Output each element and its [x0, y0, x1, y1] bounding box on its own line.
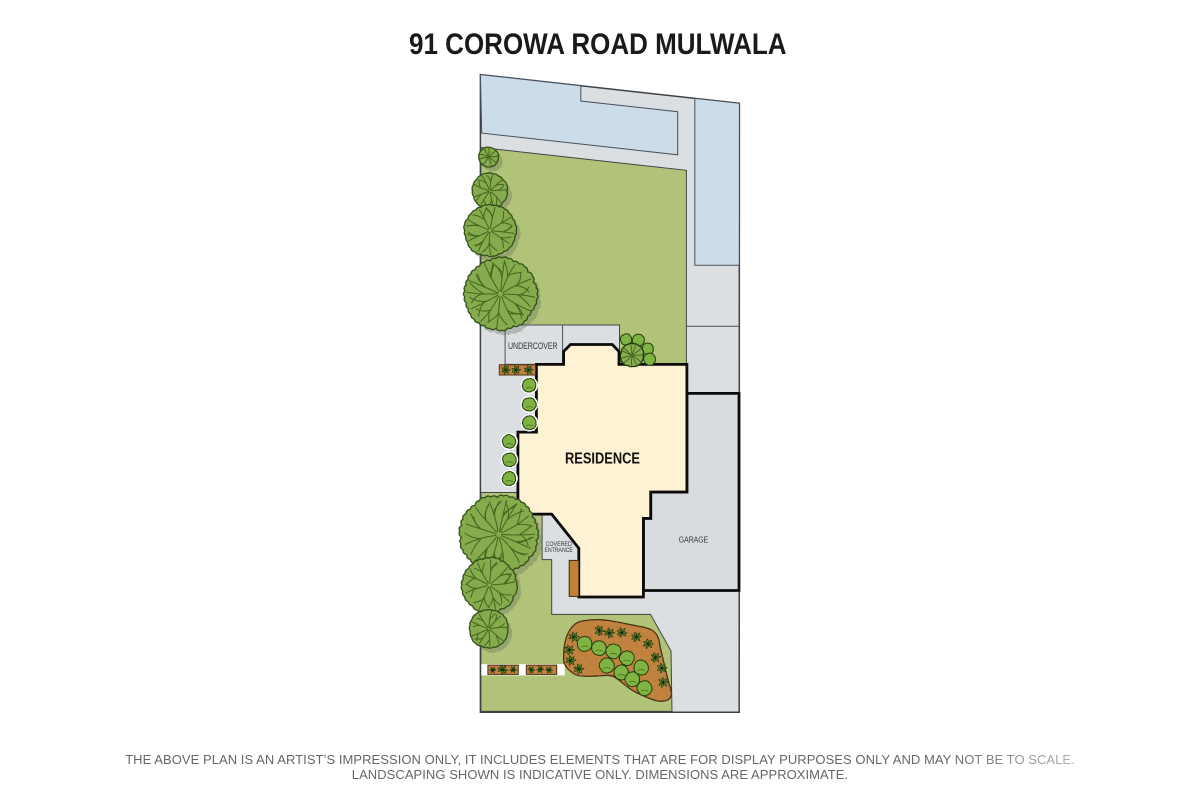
svg-text:RESIDENCE: RESIDENCE	[565, 451, 640, 468]
svg-text:ENTRANCE: ENTRANCE	[545, 547, 573, 554]
svg-text:GARAGE: GARAGE	[679, 536, 709, 545]
svg-text:UNDERCOVER: UNDERCOVER	[508, 341, 558, 351]
